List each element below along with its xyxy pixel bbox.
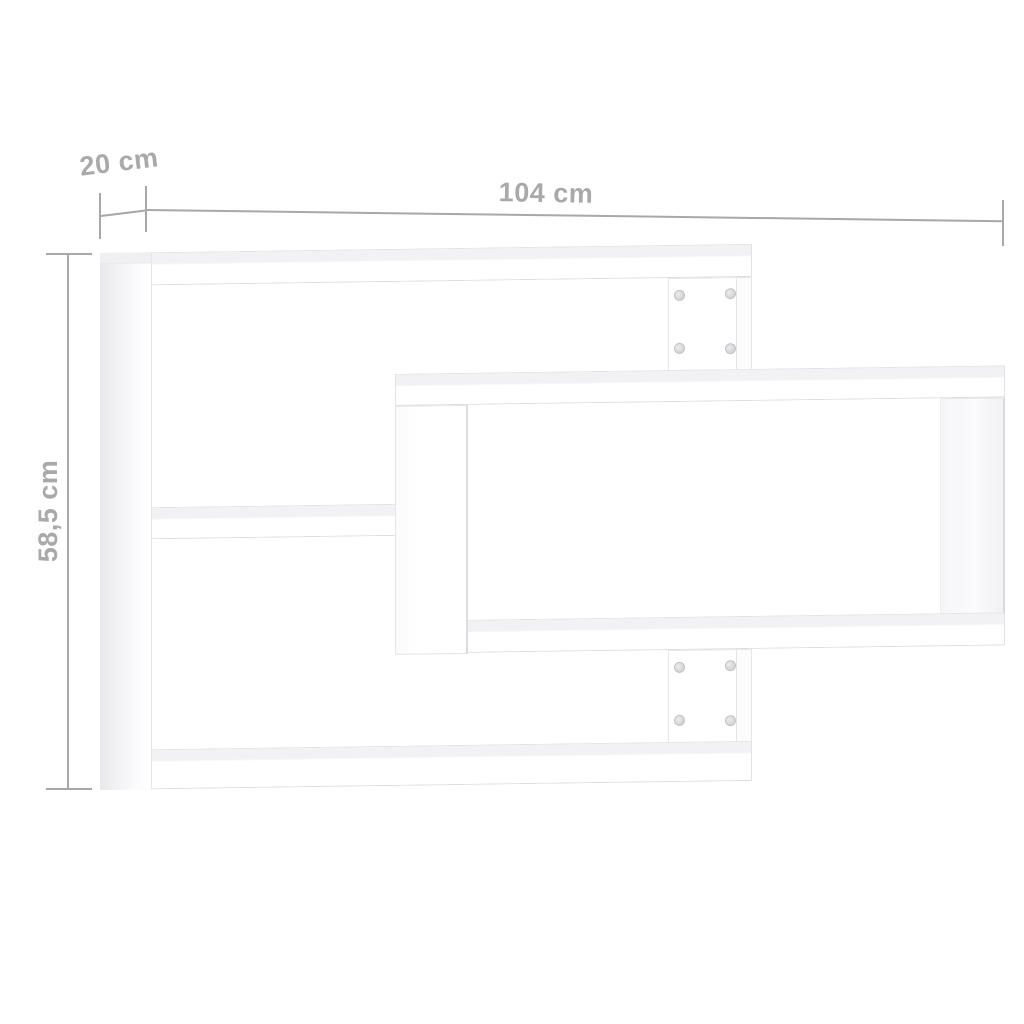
right-box-top-board (395, 365, 1005, 406)
product-dimension-diagram: 20 cm 104 cm 58,5 cm (0, 0, 1024, 1024)
screw-icon (725, 288, 736, 299)
top-board (100, 244, 752, 286)
width-dimension-label: 104 cm (471, 177, 622, 210)
lower-connector-panel (668, 649, 752, 743)
height-dimension-label: 58,5 cm (33, 441, 63, 581)
width-dimension-line (147, 209, 1003, 222)
screw-icon (674, 290, 685, 301)
right-box-left-panel (395, 405, 468, 655)
width-dimension-tick-right (1002, 200, 1004, 246)
middle-shelf (150, 504, 397, 539)
screw-icon (725, 343, 736, 354)
height-dimension-line (67, 255, 69, 789)
depth-dimension-line (101, 210, 146, 217)
depth-dimension-label: 20 cm (68, 141, 171, 183)
right-box-bottom-board (395, 612, 1005, 654)
right-box-right-panel (940, 397, 1005, 614)
left-side-panel (100, 252, 152, 790)
upper-connector-panel (668, 277, 752, 371)
screw-icon (725, 715, 736, 726)
height-dimension-tick-top (46, 253, 92, 255)
height-dimension-tick-bottom (46, 788, 92, 790)
screw-icon (674, 715, 685, 726)
bottom-board (100, 741, 752, 790)
screw-icon (674, 662, 685, 673)
screw-icon (725, 660, 736, 671)
wall-shelf-illustration (100, 240, 1005, 790)
screw-icon (674, 343, 685, 354)
